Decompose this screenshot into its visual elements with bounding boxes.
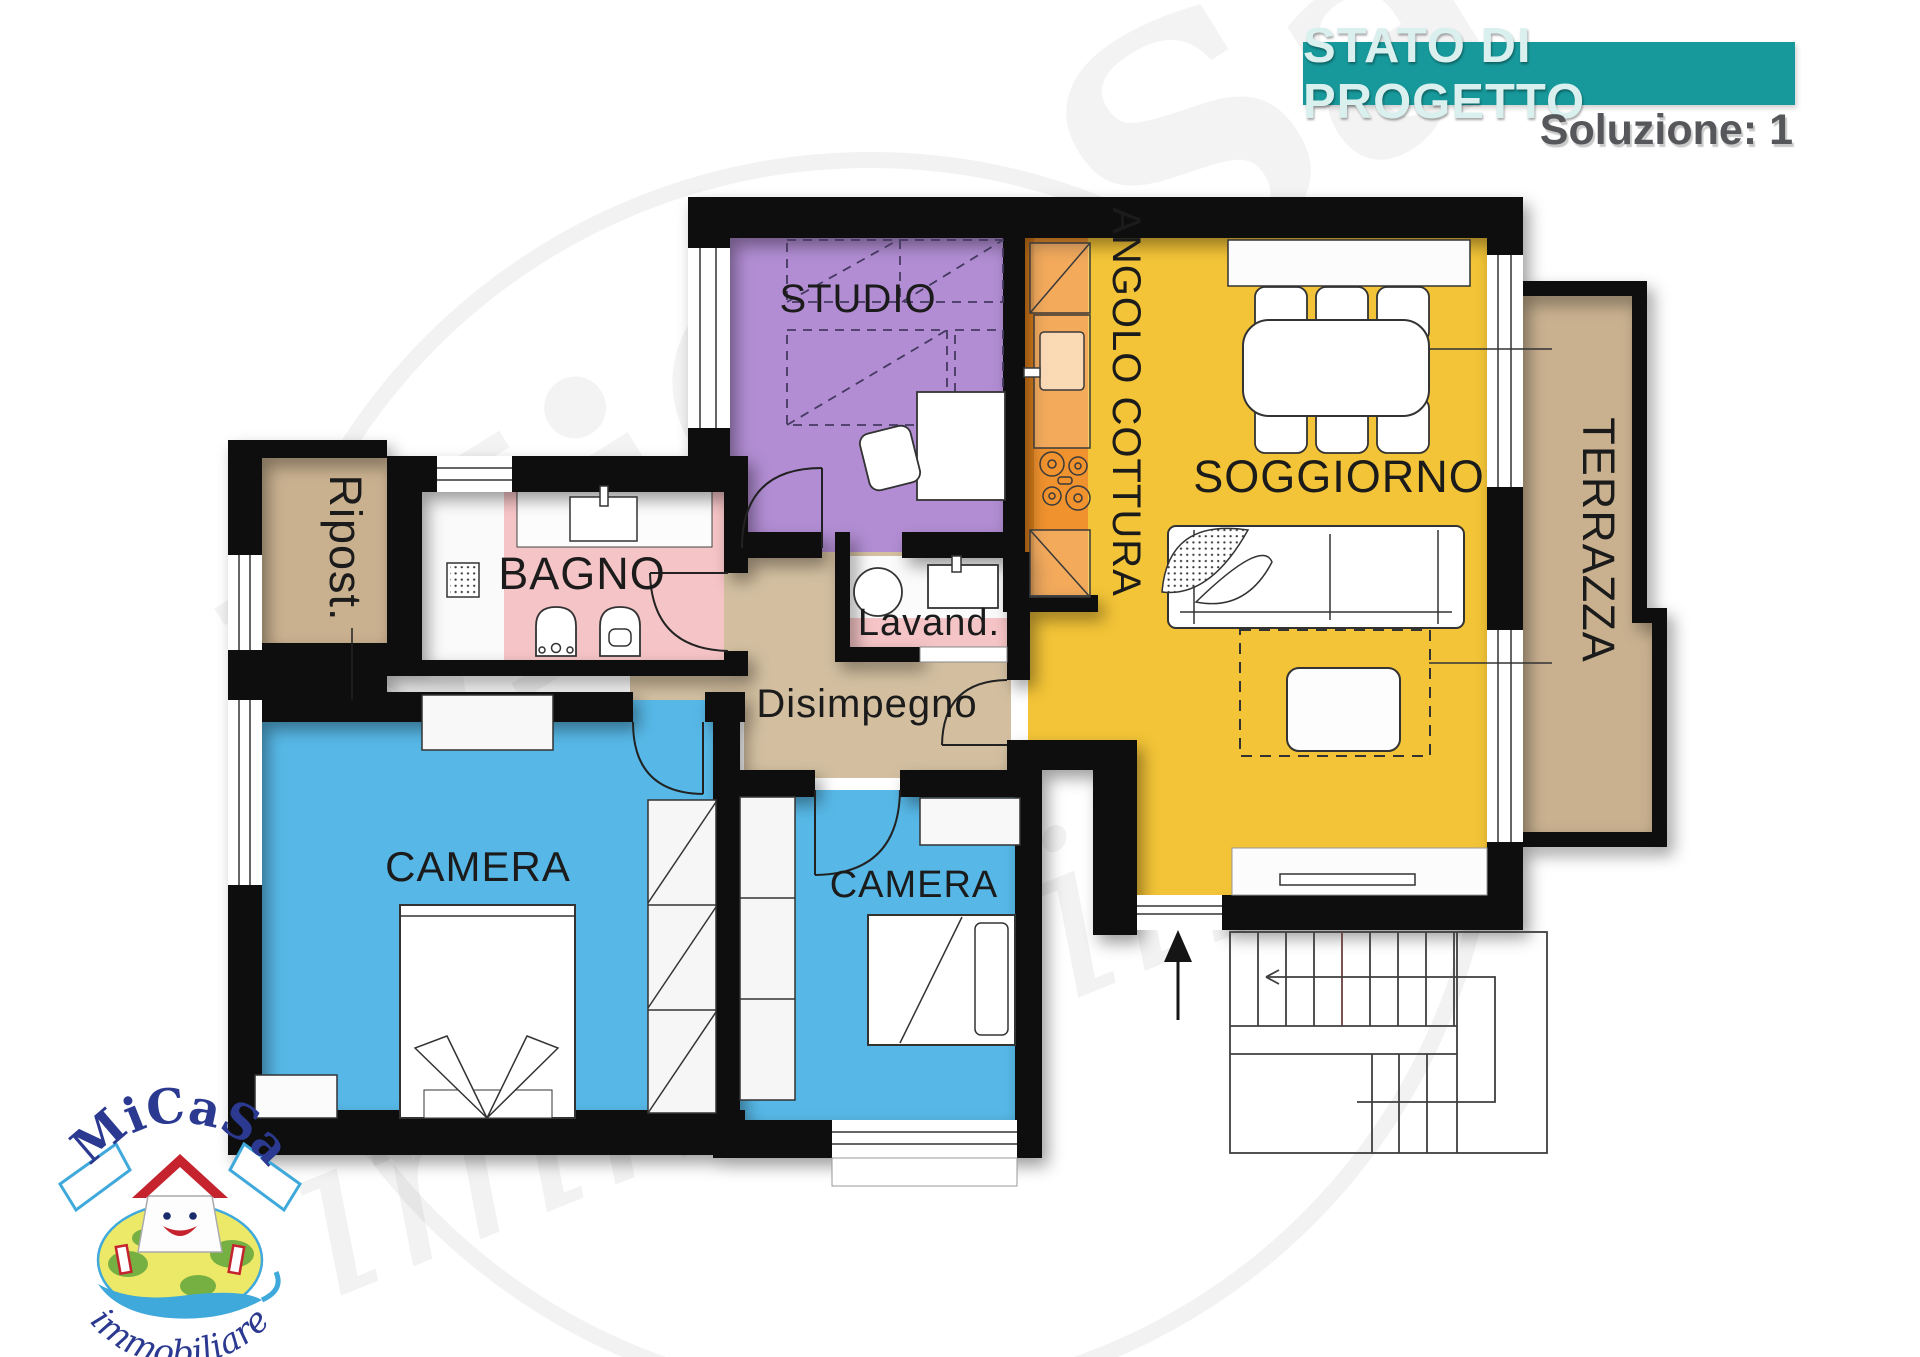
entry-mat	[1232, 848, 1487, 895]
wardrobe-2	[740, 797, 795, 1100]
dining-table	[1243, 320, 1429, 416]
label-studio: STUDIO	[779, 277, 936, 321]
window-left-upper	[228, 555, 262, 650]
kitchen-units	[1024, 243, 1090, 597]
nightstand	[255, 1075, 337, 1118]
dresser-2	[920, 798, 1020, 845]
solution-subtitle: Soluzione: 1	[1303, 106, 1793, 152]
window-studio-left	[688, 248, 730, 428]
logo-house	[132, 1154, 228, 1252]
stair-railing	[1266, 977, 1495, 1102]
label-angolo-cottura: ANGOLO COTTURA	[1104, 207, 1148, 597]
entry-door-bar	[1280, 874, 1415, 885]
wardrobe-1	[648, 800, 716, 1113]
label-bagno: BAGNO	[498, 548, 666, 599]
title-banner: STATO DI PROGETTO	[1303, 42, 1795, 105]
floorplan-drawing: MiCaSa immobiliare	[0, 0, 1920, 1357]
coffee-table	[1287, 668, 1400, 751]
desk	[917, 392, 1005, 500]
window-camera2-bottom	[832, 1120, 1017, 1186]
entry-opening	[1137, 895, 1222, 930]
sideboard	[1228, 240, 1470, 286]
lavanderia-threshold	[920, 647, 1007, 662]
window-terrazza-lower	[1487, 630, 1523, 842]
window-left-lower	[228, 700, 262, 885]
room-studio	[720, 220, 1015, 558]
label-camera-1: CAMERA	[385, 843, 571, 890]
window-bagno-top	[437, 456, 512, 492]
single-bed	[868, 915, 1015, 1045]
double-bed	[400, 905, 575, 1118]
bidet	[600, 607, 640, 656]
toilet	[536, 607, 576, 656]
label-disimpegno: Disimpegno	[756, 682, 977, 726]
dresser-1	[422, 695, 553, 750]
floorplan-page: STATO DI PROGETTO Soluzione: 1 MiCaSa im…	[0, 0, 1920, 1357]
label-lavanderia: Lavand.	[858, 602, 1000, 644]
label-soggiorno: SOGGIORNO	[1193, 451, 1485, 502]
label-ripostiglio: Ripost.	[320, 474, 371, 621]
label-terrazza: TERRAZZA	[1573, 417, 1624, 663]
label-camera-2: CAMERA	[830, 864, 999, 906]
window-terrazza-upper	[1487, 255, 1523, 487]
